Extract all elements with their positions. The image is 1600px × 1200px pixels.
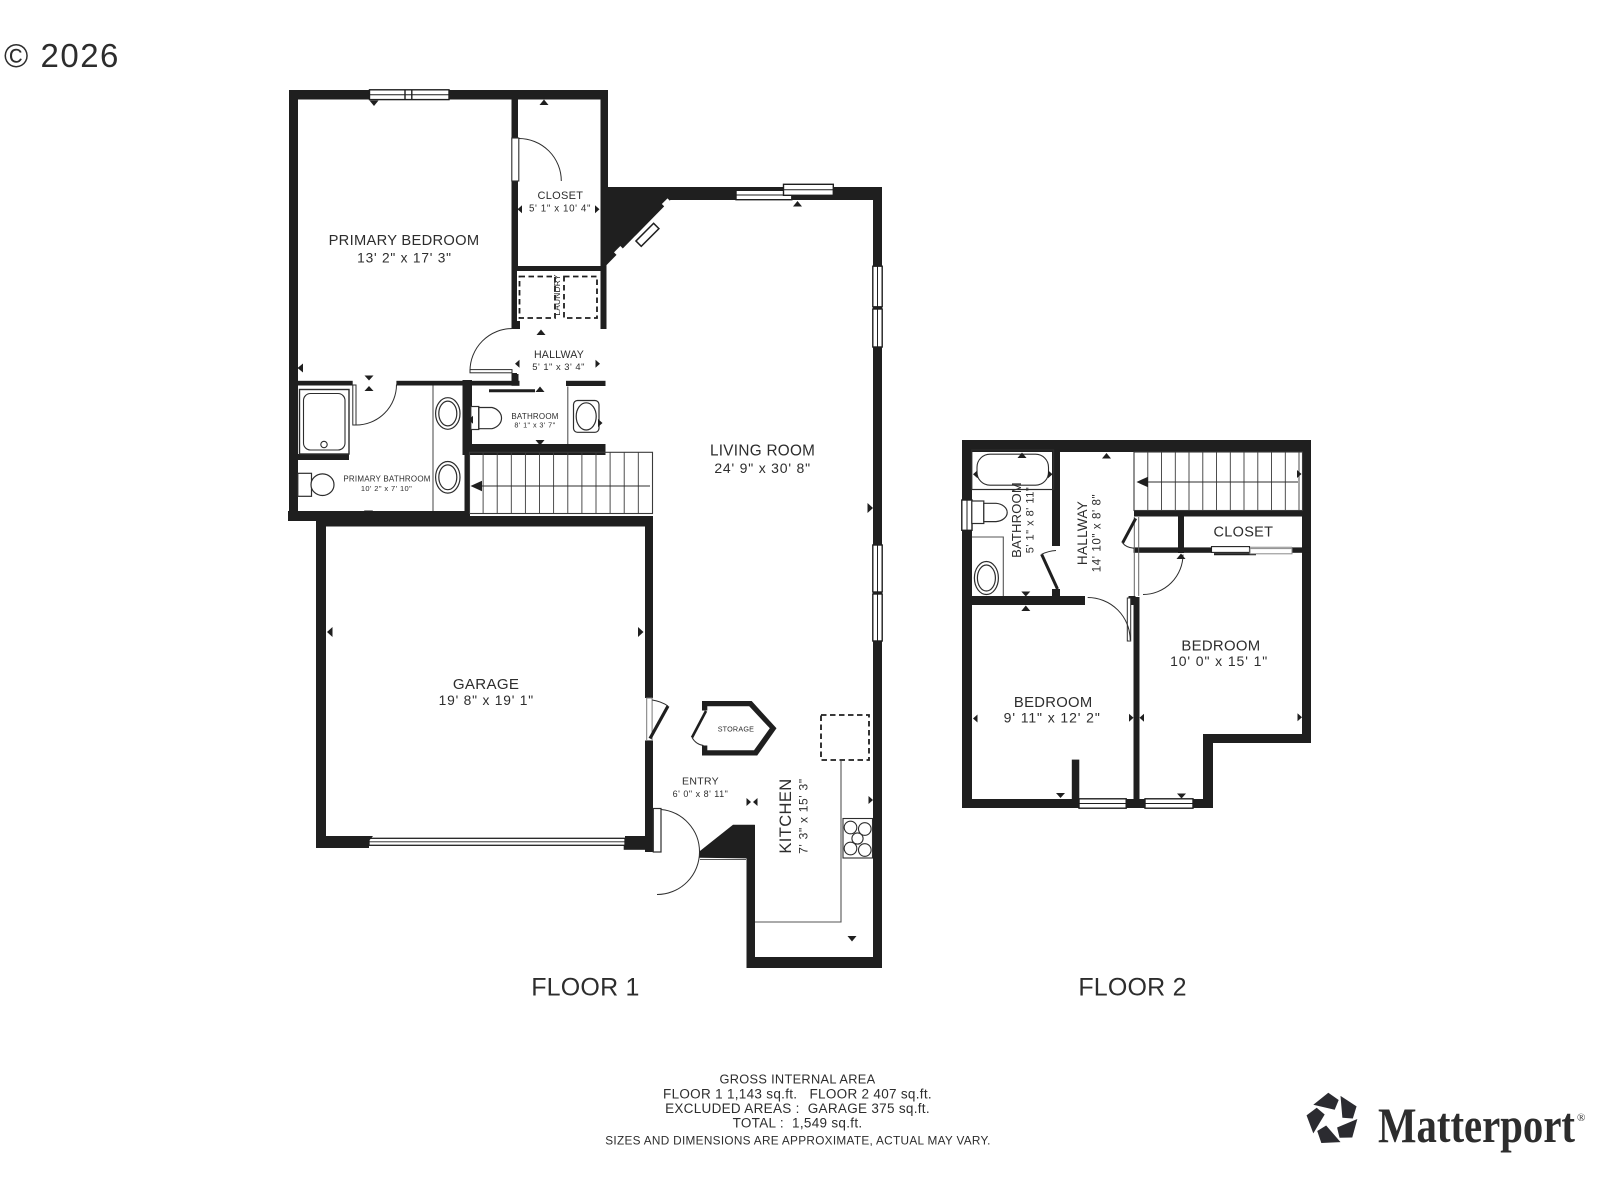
svg-text:EXCLUDED AREAS : GARAGE 375 s: EXCLUDED AREAS : GARAGE 375 sq.ft.: [665, 1101, 930, 1116]
svg-text:10' 2" x 7' 10": 10' 2" x 7' 10": [361, 484, 412, 493]
svg-text:19' 8" x 19' 1": 19' 8" x 19' 1": [439, 693, 534, 708]
svg-text:© 2026: © 2026: [4, 37, 120, 74]
svg-text:8' 1" x 3' 7": 8' 1" x 3' 7": [514, 420, 555, 429]
svg-text:HALLWAY: HALLWAY: [534, 349, 584, 361]
svg-text:FLOOR 2: FLOOR 2: [1078, 973, 1186, 1001]
svg-text:PRIMARY BATHROOM: PRIMARY BATHROOM: [343, 475, 430, 484]
svg-text:13' 2" x 17' 3": 13' 2" x 17' 3": [357, 251, 452, 266]
svg-text:®: ®: [1577, 1112, 1585, 1124]
svg-text:9' 11" x 12' 2": 9' 11" x 12' 2": [1004, 710, 1101, 726]
svg-text:HALLWAY: HALLWAY: [1075, 501, 1090, 565]
svg-text:GROSS INTERNAL AREA: GROSS INTERNAL AREA: [720, 1072, 876, 1087]
svg-text:ENTRY: ENTRY: [682, 776, 719, 788]
svg-text:LIVING ROOM: LIVING ROOM: [710, 443, 815, 460]
svg-text:LAUNDRY: LAUNDRY: [552, 274, 562, 315]
svg-text:BEDROOM: BEDROOM: [1014, 695, 1093, 711]
svg-text:CLOSET: CLOSET: [537, 190, 583, 202]
svg-text:PRIMARY BEDROOM: PRIMARY BEDROOM: [329, 233, 480, 249]
svg-text:GARAGE: GARAGE: [453, 676, 519, 693]
svg-text:SIZES AND DIMENSIONS ARE APPRO: SIZES AND DIMENSIONS ARE APPROXIMATE, AC…: [605, 1134, 991, 1148]
svg-text:24' 9" x 30' 8": 24' 9" x 30' 8": [714, 460, 811, 476]
svg-text:BEDROOM: BEDROOM: [1181, 639, 1260, 655]
svg-text:BATHROOM: BATHROOM: [1009, 482, 1024, 558]
svg-text:Matterport: Matterport: [1378, 1097, 1575, 1153]
svg-text:TOTAL : 1,549 sq.ft.: TOTAL : 1,549 sq.ft.: [733, 1116, 863, 1131]
svg-text:KITCHEN: KITCHEN: [777, 778, 795, 853]
svg-text:5' 1" x 3' 4": 5' 1" x 3' 4": [532, 361, 585, 372]
svg-text:FLOOR 1: FLOOR 1: [531, 973, 639, 1001]
svg-text:14' 10" x 8' 8": 14' 10" x 8' 8": [1092, 494, 1104, 572]
svg-text:6' 0" x 8' 11": 6' 0" x 8' 11": [673, 789, 729, 799]
svg-text:STORAGE: STORAGE: [718, 725, 754, 734]
svg-text:10' 0" x 15' 1": 10' 0" x 15' 1": [1170, 653, 1268, 669]
svg-text:5' 1" x 8' 11": 5' 1" x 8' 11": [1025, 487, 1037, 554]
svg-text:CLOSET: CLOSET: [1213, 525, 1273, 541]
svg-text:FLOOR 1 1,143 sq.ft. FLOOR 2: FLOOR 1 1,143 sq.ft. FLOOR 2 407 sq.ft.: [663, 1086, 932, 1101]
svg-text:7' 3" x 15' 3": 7' 3" x 15' 3": [797, 778, 811, 854]
svg-text:5' 1" x 10' 4": 5' 1" x 10' 4": [529, 203, 591, 214]
